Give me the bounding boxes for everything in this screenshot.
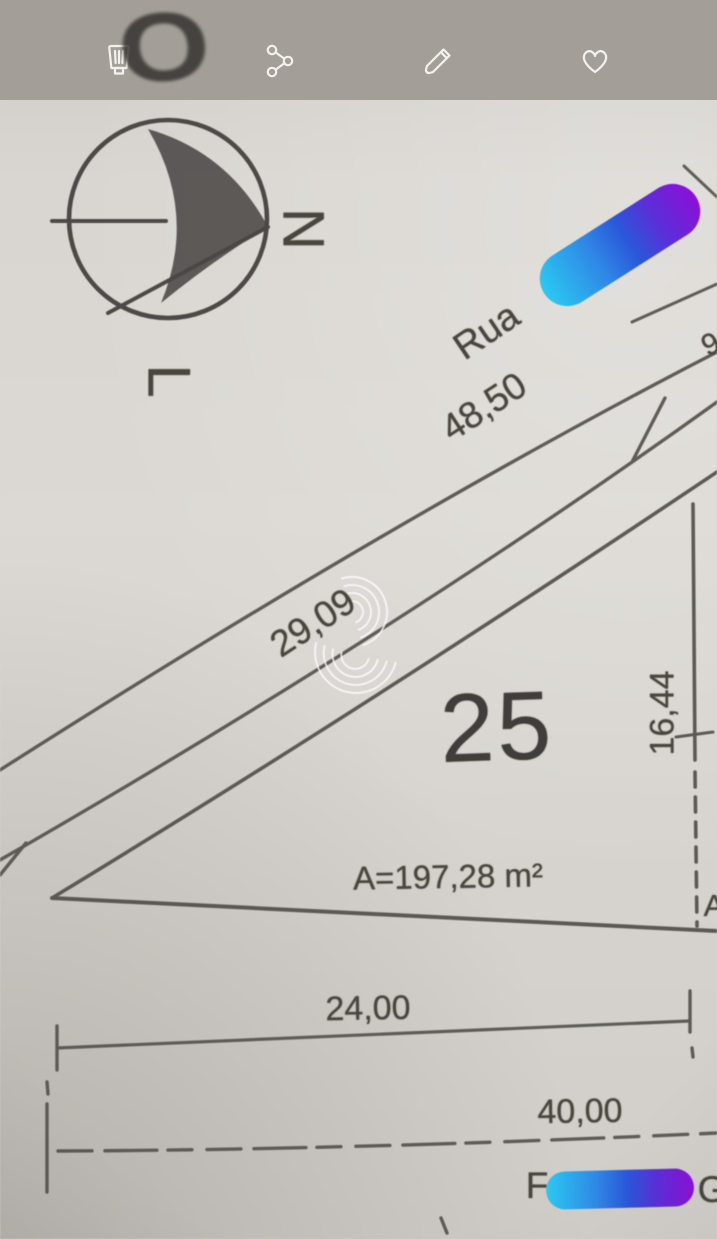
plan-linework <box>0 0 717 1239</box>
lot-area-label: A=197,28 m² <box>353 856 544 897</box>
heart-icon <box>578 45 612 77</box>
survey-plan-photo: N L Rua 48,50 29,09 25 16,44 A=197,28 m²… <box>0 0 717 1239</box>
lot-number: 25 <box>438 669 556 785</box>
compass-letter-l: L <box>135 364 204 397</box>
partial-letter-f: F <box>526 1165 549 1207</box>
edit-button[interactable] <box>416 39 460 83</box>
top-toolbar <box>0 0 717 100</box>
share-icon <box>265 44 295 78</box>
compass-rose <box>52 120 268 318</box>
partial-letter-a: A <box>704 888 717 924</box>
trash-bin-icon <box>104 43 134 79</box>
dimension-16-44: 16,44 <box>644 670 683 755</box>
compass-letter-n: N <box>270 208 337 250</box>
partial-letter-g: G <box>698 1169 717 1211</box>
photo-viewer-screen: N L Rua 48,50 29,09 25 16,44 A=197,28 m²… <box>0 0 717 1239</box>
delete-button[interactable] <box>97 39 141 83</box>
highlight-stroke-owner-name <box>546 1168 695 1210</box>
dimension-40-00: 40,00 <box>537 1092 623 1132</box>
share-button[interactable] <box>258 39 302 83</box>
dimension-24-00: 24,00 <box>325 989 411 1029</box>
favorite-button[interactable] <box>573 39 617 83</box>
pencil-icon <box>422 45 454 77</box>
